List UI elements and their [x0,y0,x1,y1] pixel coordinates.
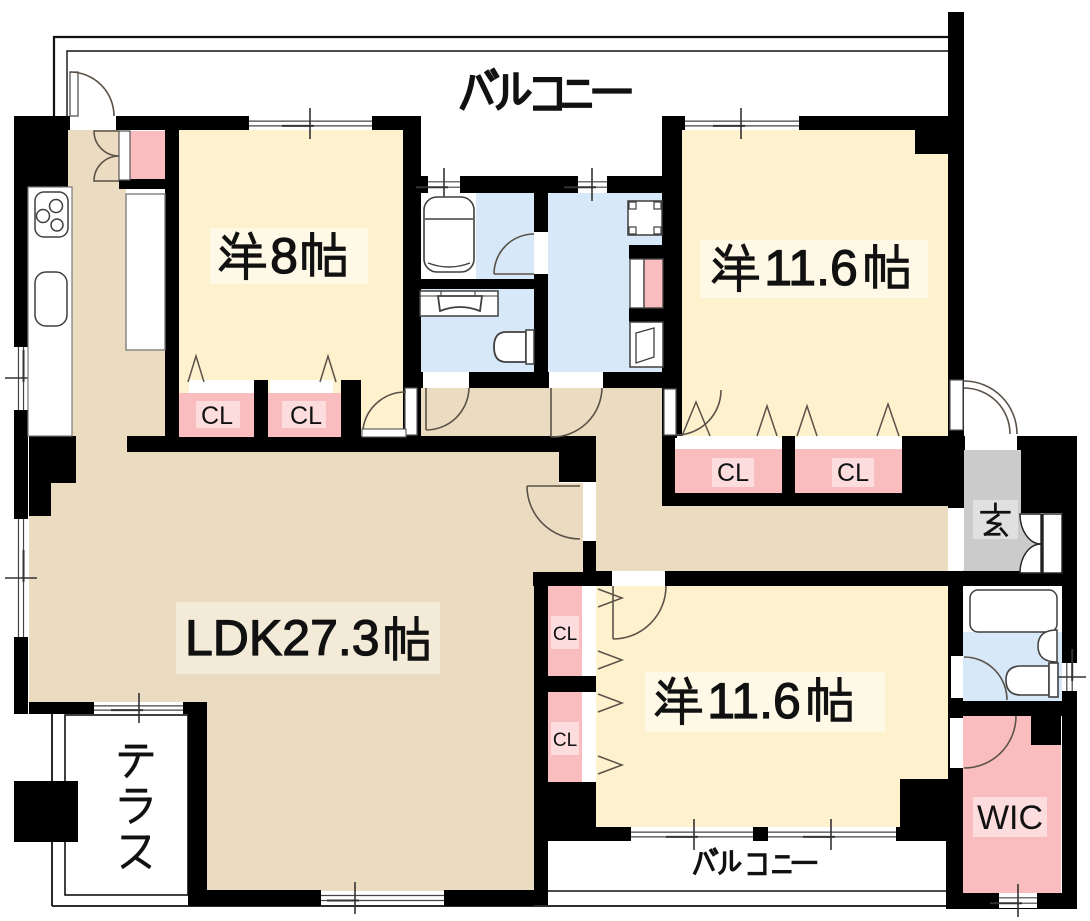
svg-text:CL: CL [290,402,322,430]
svg-text:11.6: 11.6 [764,240,858,296]
svg-text:CL: CL [717,459,749,487]
svg-text:WIC: WIC [977,799,1043,837]
svg-text:CL: CL [553,730,577,751]
svg-text:11.6: 11.6 [707,673,801,729]
svg-text:CL: CL [837,459,869,487]
svg-text:8: 8 [270,228,298,284]
svg-text:CL: CL [201,402,233,430]
svg-text:CL: CL [553,624,577,645]
svg-text:LDK27.3: LDK27.3 [185,610,380,666]
